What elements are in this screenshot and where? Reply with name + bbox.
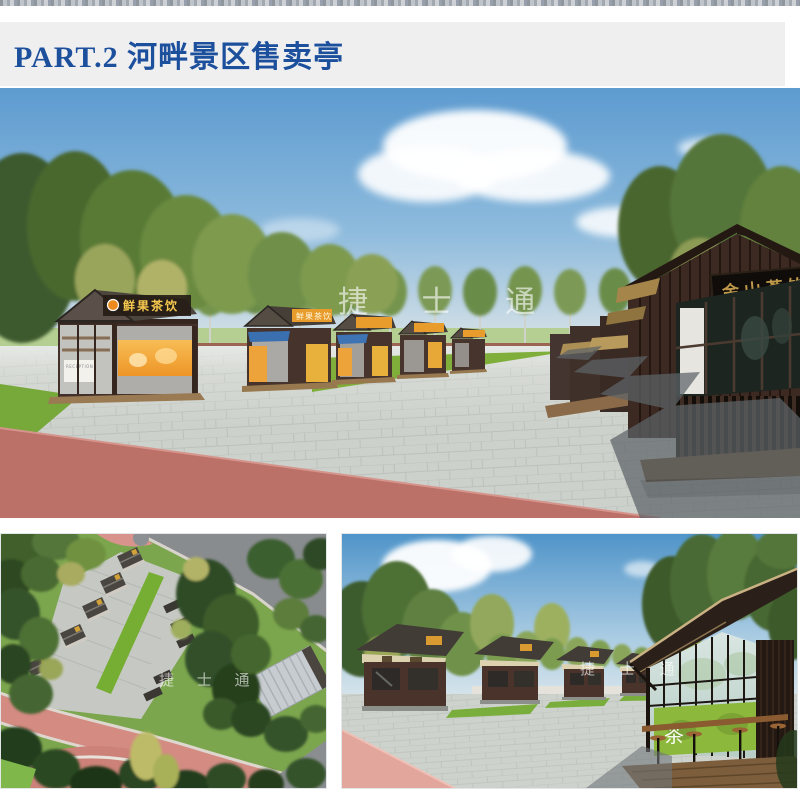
kiosk-1-logo bbox=[108, 300, 119, 311]
page: PART.2 河畔景区售卖亭 bbox=[0, 0, 800, 789]
secondary-render-image: 茶 茶 bbox=[341, 533, 798, 789]
kiosk-2-banner-b bbox=[306, 344, 328, 382]
aerial-render-scene: 捷 士 通 bbox=[1, 534, 327, 789]
section-title-band: PART.2 河畔景区售卖亭 bbox=[0, 22, 785, 86]
spacer bbox=[0, 6, 800, 22]
main-render-scene: RECEPTION 鲜果茶饮 鲜果茶饮 bbox=[0, 88, 800, 518]
watermark-aerial: 捷 士 通 bbox=[159, 671, 259, 689]
kiosk-1-sign: 鲜果茶饮 bbox=[123, 298, 179, 313]
kiosk-3 bbox=[332, 314, 396, 385]
kiosk-2: 鲜果茶饮 bbox=[242, 306, 338, 392]
secondary-render-scene: 茶 茶 bbox=[342, 534, 798, 789]
kiosk-1-banner bbox=[118, 340, 192, 376]
kiosk-5 bbox=[450, 328, 487, 374]
watermark-secondary: 捷 士 通 bbox=[580, 660, 685, 678]
kiosk-1-glass-front bbox=[60, 325, 112, 394]
kiosk-2-sign: 鲜果茶饮 bbox=[296, 311, 332, 321]
bottom-image-row: 捷 士 通 bbox=[0, 533, 800, 789]
aerial-render-image: 捷 士 通 bbox=[0, 533, 327, 789]
kiosk-4 bbox=[397, 321, 449, 379]
main-render-image: RECEPTION 鲜果茶饮 鲜果茶饮 bbox=[0, 88, 800, 518]
kiosk-2-awning bbox=[248, 331, 290, 342]
kiosk-4-sign-board bbox=[414, 323, 444, 332]
section-title: PART.2 河畔景区售卖亭 bbox=[14, 32, 344, 76]
kiosk-2-banner-a bbox=[249, 346, 267, 382]
kiosk-3-awning bbox=[337, 334, 368, 344]
watermark-main: 捷 士 通 bbox=[338, 285, 557, 320]
kiosk-1-counter-label: RECEPTION bbox=[66, 364, 93, 369]
